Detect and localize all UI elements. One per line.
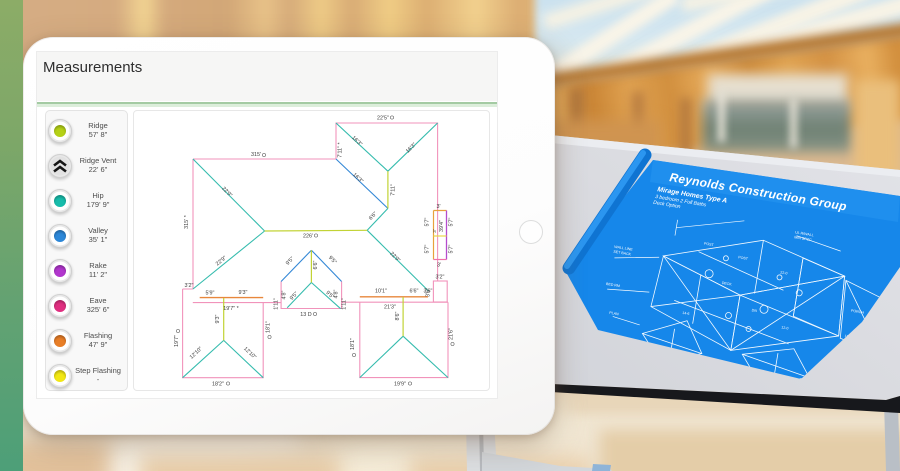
svg-text:22'5": 22'5" <box>377 116 389 122</box>
svg-text:5'9": 5'9" <box>206 291 215 297</box>
svg-text:21'3": 21'3" <box>384 305 396 311</box>
svg-text:19'7" *: 19'7" * <box>223 306 239 312</box>
svg-text:3': 3' <box>436 204 440 210</box>
svg-text:7'11": 7'11" <box>391 184 397 196</box>
svg-text:3'2": 3'2" <box>185 283 194 289</box>
svg-text:4'8": 4'8" <box>282 290 288 299</box>
svg-text:5'7": 5'7" <box>425 244 431 253</box>
svg-text:3'6": 3'6" <box>426 288 432 297</box>
svg-text:19'9": 19'9" <box>394 382 406 388</box>
svg-text:315': 315' <box>251 152 261 158</box>
svg-text:3': 3' <box>437 263 441 269</box>
svg-text:5'7": 5'7" <box>425 217 431 226</box>
svg-text:18'2": 18'2" <box>212 382 224 388</box>
svg-text:18'1": 18'1" <box>350 338 356 350</box>
svg-text:1'11": 1'11" <box>274 298 280 310</box>
svg-text:4'8": 4'8" <box>334 289 340 298</box>
svg-text:10'1": 10'1" <box>375 289 387 295</box>
svg-text:3': 3' <box>432 229 437 233</box>
svg-text:9'3": 9'3" <box>215 314 221 323</box>
svg-text:16'3": 16'3" <box>351 172 364 185</box>
svg-text:12'10": 12'10" <box>242 346 257 361</box>
svg-text:5'7": 5'7" <box>449 244 455 253</box>
svg-text:19'7": 19'7" <box>174 335 180 347</box>
svg-text:39'4": 39'4" <box>439 220 445 232</box>
svg-text:21'6": 21'6" <box>449 328 455 340</box>
svg-text:9'5": 9'5" <box>285 256 296 267</box>
svg-text:7'11" *: 7'11" * <box>338 142 344 158</box>
svg-text:6'6": 6'6" <box>313 260 319 269</box>
svg-text:9'3": 9'3" <box>239 290 248 296</box>
svg-text:9'5": 9'5" <box>289 291 300 302</box>
svg-text:6'6": 6'6" <box>410 289 419 295</box>
svg-text:9'5": 9'5" <box>327 255 338 266</box>
svg-text:18'1": 18'1" <box>266 321 272 333</box>
svg-text:315' *: 315' * <box>184 214 190 229</box>
svg-text:5'7": 5'7" <box>449 217 455 226</box>
svg-text:226': 226' <box>303 234 313 240</box>
svg-text:1'11": 1'11" <box>342 298 348 310</box>
svg-text:13 D: 13 D <box>300 312 311 318</box>
svg-text:12'10": 12'10" <box>189 346 204 361</box>
svg-text:3'2": 3'2" <box>436 275 445 281</box>
svg-text:8'6": 8'6" <box>395 311 401 320</box>
